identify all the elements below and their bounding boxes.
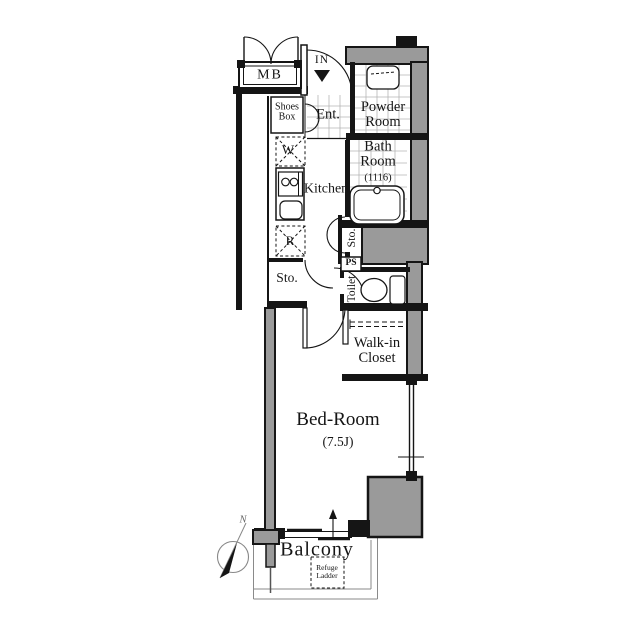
- storage-right-label: Sto.: [345, 228, 357, 247]
- mb-label: MB: [257, 69, 283, 84]
- north-label: N: [239, 516, 246, 527]
- floorplan: MB IN ShoesBox Ent. PowderRoom BathRoom(…: [0, 0, 640, 640]
- bedroom-size-label: (7.5J): [322, 435, 353, 449]
- refuge-ladder-label: RefugeLadder: [316, 564, 338, 580]
- stove-icon: [279, 172, 303, 196]
- entrance-label: Ent.: [316, 107, 340, 122]
- storage-left-label: Sto.: [276, 271, 297, 285]
- balcony-label: Balcony: [280, 540, 354, 561]
- bedroom-door-arc-icon: [305, 308, 345, 348]
- pipe-space-label: PS: [345, 259, 356, 269]
- storage-bifold-arc-icon: [327, 235, 345, 253]
- toilet-icon: [361, 276, 405, 304]
- mb-doors-icon: [244, 37, 298, 64]
- hanger-rod: [350, 320, 407, 330]
- washer-label: W: [282, 143, 294, 157]
- fridge-label: R: [286, 234, 295, 248]
- compass-icon: [218, 523, 249, 578]
- up-arrow-icon: [329, 509, 337, 540]
- bathtub-icon: [350, 186, 404, 224]
- kitchen-counter: [276, 168, 304, 220]
- bath-room-label: BathRoom(1116): [360, 139, 395, 184]
- toilet-label: Toilet: [347, 276, 359, 303]
- in-arrow-icon: [314, 70, 330, 82]
- bedroom-label: Bed-Room: [296, 410, 379, 430]
- window: [398, 377, 424, 481]
- bath-size-label: (1116): [364, 173, 391, 184]
- powder-room-label: PowderRoom: [361, 100, 405, 130]
- walk-in-closet-label: Walk-inCloset: [354, 336, 400, 366]
- sto-door-arc-icon: [305, 260, 333, 288]
- kitchen-label: Kitchen: [304, 183, 348, 198]
- shoes-box-label: ShoesBox: [275, 103, 299, 124]
- kitchen-sink-icon: [280, 201, 302, 219]
- in-label: IN: [315, 55, 329, 67]
- washbasin-icon: [367, 66, 399, 89]
